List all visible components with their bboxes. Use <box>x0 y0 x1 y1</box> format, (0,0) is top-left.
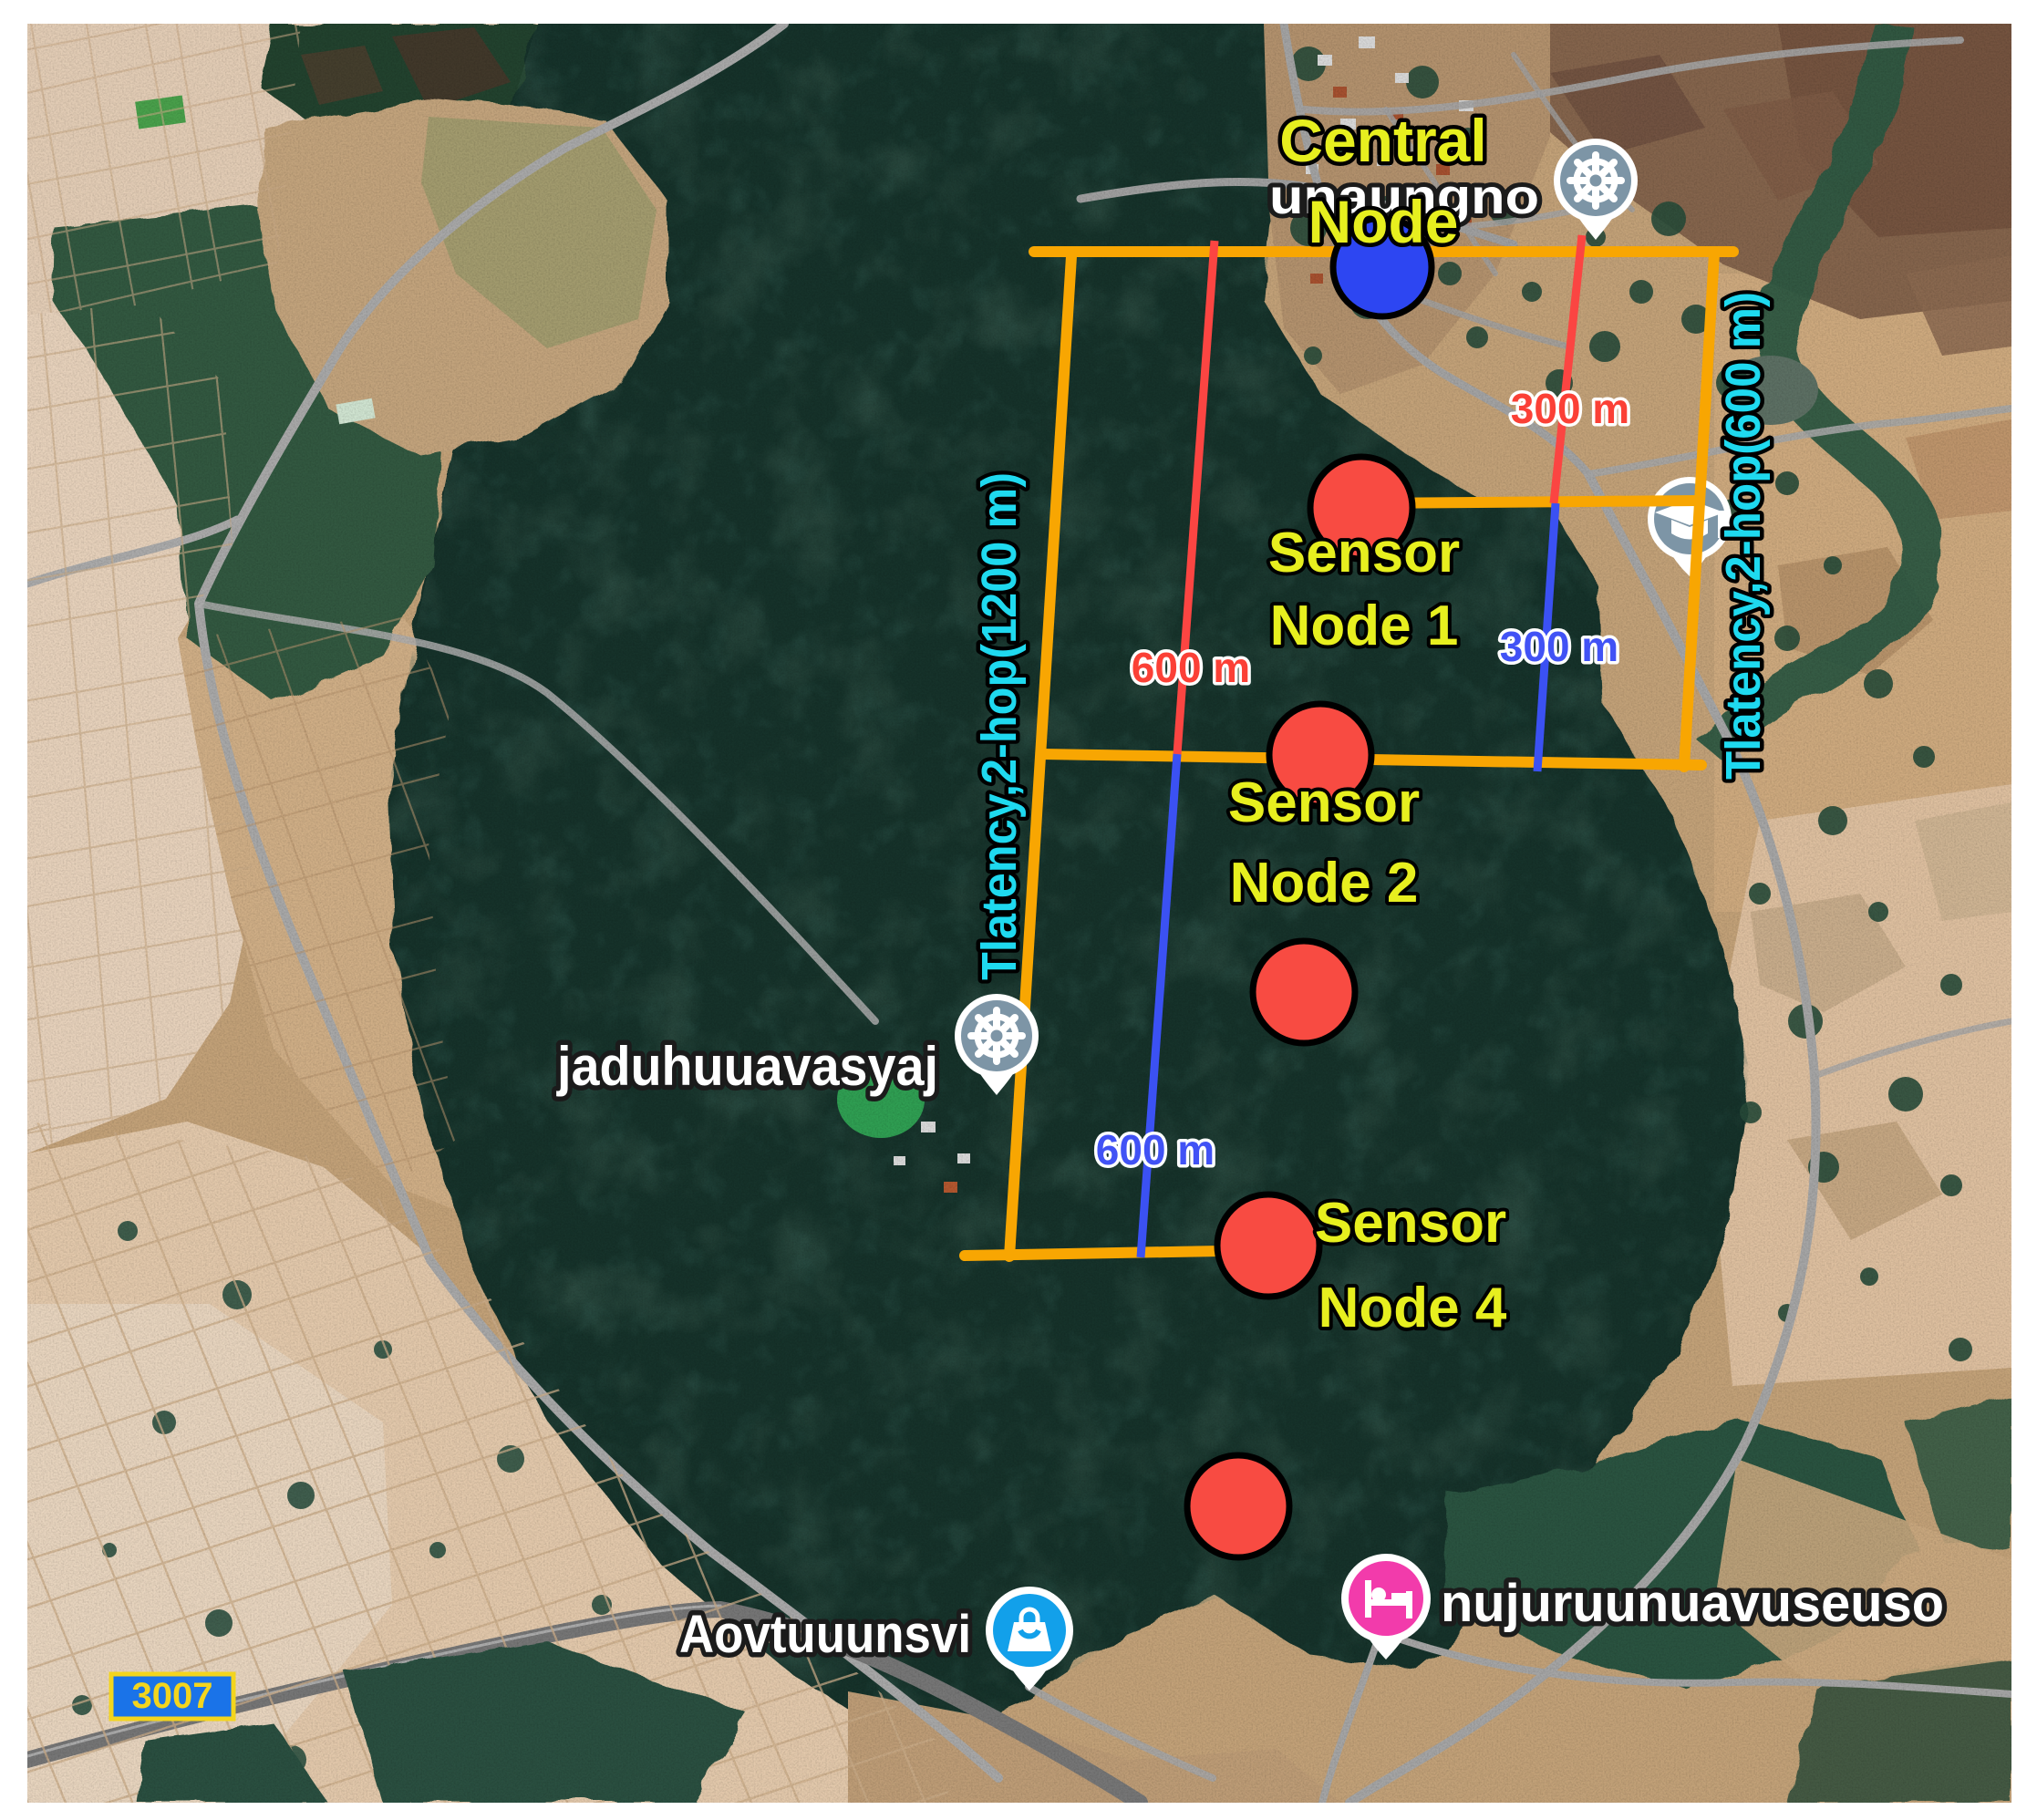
svg-text:300 m: 300 m <box>1500 623 1618 670</box>
svg-text:600 m: 600 m <box>1132 644 1250 691</box>
svg-text:nujuruunuavuseuso: nujuruunuavuseuso <box>1441 1574 1944 1633</box>
svg-text:Central: Central <box>1279 107 1486 174</box>
svg-text:600 m: 600 m <box>1096 1126 1215 1174</box>
svg-text:Sensor: Sensor <box>1268 522 1460 584</box>
svg-text:Node 1: Node 1 <box>1270 595 1459 657</box>
svg-text:jaduhuuavasyaj: jaduhuuavasyaj <box>556 1036 938 1097</box>
svg-text:Node 4: Node 4 <box>1318 1277 1507 1339</box>
svg-text:Node: Node <box>1308 188 1459 255</box>
svg-text:Aovtuuunsvi: Aovtuuunsvi <box>679 1605 971 1664</box>
svg-text:3007: 3007 <box>132 1676 213 1716</box>
svg-text:Sensor: Sensor <box>1228 771 1420 834</box>
svg-text:Sensor: Sensor <box>1315 1192 1506 1255</box>
svg-text:Tlatency,2-hop(600 m): Tlatency,2-hop(600 m) <box>1716 292 1771 780</box>
svg-text:Node 2: Node 2 <box>1230 852 1419 915</box>
svg-text:300 m: 300 m <box>1511 385 1629 432</box>
svg-text:Tlatency,2-hop(1200 m): Tlatency,2-hop(1200 m) <box>972 472 1027 980</box>
